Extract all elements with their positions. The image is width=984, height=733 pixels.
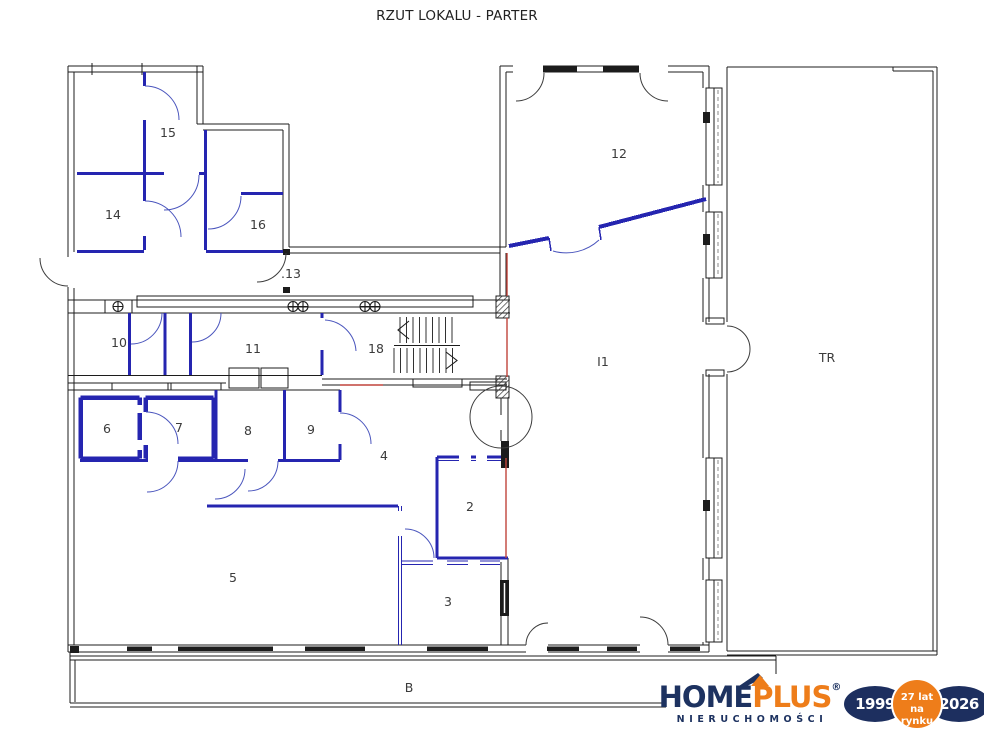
room-label-hall-i1: I1 (597, 354, 609, 369)
room-label-8: 8 (244, 423, 252, 438)
badge-anniversary-line2: na rynku (893, 704, 941, 728)
room-label-11: 11 (245, 341, 261, 356)
room-label-18: 18 (368, 341, 384, 356)
room-label-15: 15 (160, 125, 176, 140)
room-label-13: .13 (281, 266, 301, 281)
room-label-14: 14 (105, 207, 121, 222)
room-label-tr: TR (818, 350, 836, 365)
room-label-4: 4 (380, 448, 388, 463)
room-label-5: 5 (229, 570, 237, 585)
badge-anniversary-line1: 27 lat (893, 692, 941, 704)
door-arcs-blue (131, 86, 599, 558)
door-arcs-dark (40, 73, 750, 645)
room-label-6: 6 (103, 421, 111, 436)
room-label-10: 10 (111, 335, 127, 350)
room-label-7: 7 (175, 420, 183, 435)
marker-lines-red (340, 253, 507, 558)
room-label-16: 16 (250, 217, 266, 232)
room-label-12: 12 (611, 146, 627, 161)
room-label-2: 2 (466, 499, 474, 514)
room-label-3: 3 (444, 594, 452, 609)
homeplus-logo: HOMEPLUS® NIERUCHOMOŚCI 1999 27 lat na r… (666, 674, 982, 733)
floor-plan-page: RZUT LOKALU - PARTER (0, 0, 984, 733)
floor-plan-drawing: 15 14 16 .13 10 11 18 12 6 7 8 9 4 2 3 5… (0, 0, 984, 733)
logo-anniversary-badges: 1999 27 lat na rynku 2026 (844, 677, 984, 730)
registered-mark: ® (831, 682, 841, 693)
staircase (394, 317, 460, 373)
thick-partition-rooms-6-7 (81, 398, 214, 459)
logo-subtitle: NIERUCHOMOŚCI (677, 714, 828, 725)
logo-wordmark: HOMEPLUS® NIERUCHOMOŚCI (666, 683, 834, 725)
logo-roof-icon (739, 673, 771, 690)
room-label-9: 9 (307, 422, 315, 437)
room-label-balcony-b: B (405, 680, 414, 695)
badge-anniversary: 27 lat na rynku (891, 678, 943, 730)
